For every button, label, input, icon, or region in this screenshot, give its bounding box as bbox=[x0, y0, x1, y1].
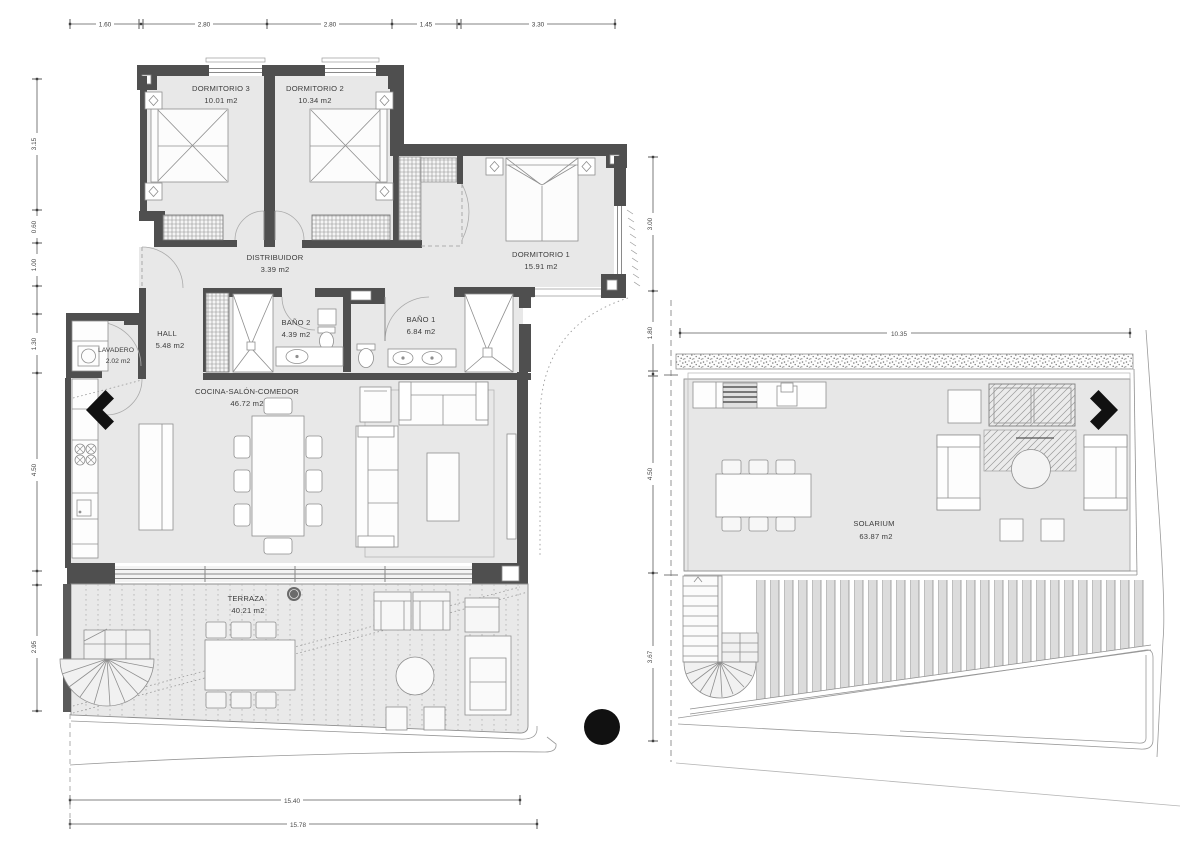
svg-text:DORMITORIO 2: DORMITORIO 2 bbox=[286, 84, 344, 93]
svg-text:5.48 m2: 5.48 m2 bbox=[156, 341, 185, 350]
svg-text:4.50: 4.50 bbox=[31, 463, 38, 476]
svg-text:2.80: 2.80 bbox=[324, 22, 337, 29]
svg-text:1.30: 1.30 bbox=[31, 337, 38, 350]
svg-text:4.50: 4.50 bbox=[647, 467, 654, 480]
svg-text:LAVADERO: LAVADERO bbox=[98, 347, 134, 354]
svg-text:15.91 m2: 15.91 m2 bbox=[524, 262, 557, 271]
svg-text:0.60: 0.60 bbox=[31, 220, 38, 233]
svg-text:46.72 m2: 46.72 m2 bbox=[230, 399, 263, 408]
svg-text:10.35: 10.35 bbox=[891, 331, 907, 338]
svg-text:10.01 m2: 10.01 m2 bbox=[204, 96, 237, 105]
svg-text:6.84 m2: 6.84 m2 bbox=[407, 327, 436, 336]
svg-text:3.30: 3.30 bbox=[532, 22, 545, 29]
svg-text:1.80: 1.80 bbox=[647, 326, 654, 339]
svg-text:DORMITORIO 3: DORMITORIO 3 bbox=[192, 84, 250, 93]
svg-text:15.78: 15.78 bbox=[290, 822, 306, 829]
svg-text:TERRAZA: TERRAZA bbox=[228, 594, 266, 603]
svg-text:3.15: 3.15 bbox=[31, 137, 38, 150]
svg-text:1.45: 1.45 bbox=[420, 22, 433, 29]
svg-text:BAÑO 1: BAÑO 1 bbox=[406, 315, 435, 324]
svg-text:SOLARIUM: SOLARIUM bbox=[853, 519, 894, 528]
svg-text:1.00: 1.00 bbox=[31, 258, 38, 271]
svg-text:2.95: 2.95 bbox=[31, 640, 38, 653]
svg-text:4.39 m2: 4.39 m2 bbox=[282, 330, 311, 339]
svg-text:3.67: 3.67 bbox=[647, 650, 654, 663]
svg-text:15.40: 15.40 bbox=[284, 798, 300, 805]
svg-text:63.87 m2: 63.87 m2 bbox=[859, 532, 892, 541]
svg-text:BAÑO 2: BAÑO 2 bbox=[281, 318, 310, 327]
svg-text:2.02 m2: 2.02 m2 bbox=[106, 358, 131, 365]
svg-text:HALL: HALL bbox=[157, 329, 177, 338]
svg-text:DISTRIBUIDOR: DISTRIBUIDOR bbox=[247, 253, 304, 262]
svg-text:40.21 m2: 40.21 m2 bbox=[231, 606, 264, 615]
svg-text:2.80: 2.80 bbox=[198, 22, 211, 29]
svg-text:3.39 m2: 3.39 m2 bbox=[261, 265, 290, 274]
svg-text:3.00: 3.00 bbox=[647, 217, 654, 230]
svg-text:DORMITORIO 1: DORMITORIO 1 bbox=[512, 250, 570, 259]
svg-text:COCINA-SALÓN-COMEDOR: COCINA-SALÓN-COMEDOR bbox=[195, 387, 299, 396]
svg-text:10.34 m2: 10.34 m2 bbox=[298, 96, 331, 105]
